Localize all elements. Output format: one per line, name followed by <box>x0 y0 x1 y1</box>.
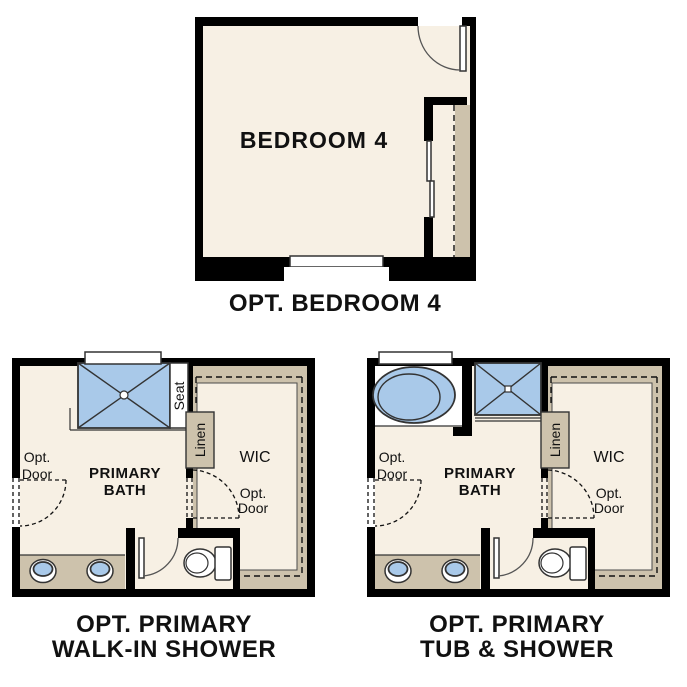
walkin-caption-line2: WALK-IN SHOWER <box>8 637 320 662</box>
walkin-caption: OPT. PRIMARY WALK-IN SHOWER <box>8 612 320 662</box>
sink-2-basin <box>91 562 110 576</box>
walkin-shower-plan: Seat Linen Opt. Door Opt. Door <box>8 348 320 602</box>
toilet-room-wall-top <box>178 528 240 538</box>
linen-label: Linen <box>547 423 563 457</box>
sink-1-basin <box>34 562 53 576</box>
bath-label-1: PRIMARY <box>444 465 516 482</box>
sink-2-basin <box>446 562 465 576</box>
toilet-door-leaf <box>494 538 499 578</box>
toilet-door-leaf <box>139 538 144 578</box>
closet-wall-top <box>424 97 467 105</box>
door-leaf <box>460 26 466 71</box>
vanity <box>20 555 125 589</box>
bath-label-2: BATH <box>459 482 502 499</box>
bedroom-caption: OPT. BEDROOM 4 <box>185 291 485 316</box>
bath-label-1: PRIMARY <box>89 465 161 482</box>
bath-wic-wall-upper <box>541 358 548 412</box>
wic-label: WIC <box>239 449 270 466</box>
window-glass <box>290 256 383 267</box>
linen-label: Linen <box>192 423 208 457</box>
bedroom-label: BEDROOM 4 <box>240 127 388 153</box>
tub-shower-plan: Linen Opt. Door Opt. Door <box>362 348 674 602</box>
tubshower-caption-line1: OPT. PRIMARY <box>360 612 674 637</box>
tubshower-caption-line2: TUB & SHOWER <box>360 637 674 662</box>
linen-cabinet: Linen <box>541 412 569 468</box>
door-opening <box>418 16 462 26</box>
bath-wic-wall-mid <box>186 468 193 478</box>
bath-label-2: BATH <box>104 482 147 499</box>
toilet-room-wall-right <box>233 528 240 589</box>
opt-door-label-1: Opt. <box>240 485 266 501</box>
bedroom-window <box>284 256 389 284</box>
shower-drain <box>120 391 128 399</box>
closet-shelf-band <box>455 105 470 257</box>
opt-door-label-1: Opt. <box>379 449 405 465</box>
closet-wall-stub-lower <box>424 217 433 257</box>
shower: Seat <box>70 363 188 430</box>
sink-1-basin <box>389 562 408 576</box>
vanity <box>375 555 480 589</box>
bath-window <box>379 352 452 364</box>
closet-slider-panel-1 <box>427 141 431 181</box>
opt-door-label-2: Door <box>377 466 408 482</box>
tubshower-caption: OPT. PRIMARY TUB & SHOWER <box>360 612 674 662</box>
opening <box>186 478 193 518</box>
closet-wall-stub-upper <box>424 105 433 141</box>
tub-shower-wall <box>462 358 472 436</box>
opt-door-label-2: Door <box>238 500 269 516</box>
window-sill <box>284 267 389 284</box>
tub <box>373 358 472 436</box>
opt-door-label-2: Door <box>594 500 625 516</box>
floorplan-sheet: BEDROOM 4 OPT. BEDROOM 4 <box>0 0 687 687</box>
bedroom4-plan: BEDROOM 4 <box>190 12 482 284</box>
toilet-tank <box>215 547 231 580</box>
linen-cabinet: Linen <box>186 412 214 468</box>
toilet-tank <box>570 547 586 580</box>
bath-wic-wall-mid <box>541 468 548 478</box>
toilet-room-wall-left <box>481 528 490 589</box>
tub-rim <box>373 367 455 423</box>
tub-shower-wall-stub <box>453 427 472 436</box>
walkin-caption-line1: OPT. PRIMARY <box>8 612 320 637</box>
seat-label: Seat <box>171 381 187 410</box>
toilet-room-wall-left <box>126 528 135 589</box>
opt-door-label-1: Opt. <box>24 449 50 465</box>
opening <box>541 478 548 518</box>
shower-drain <box>505 386 511 392</box>
closet-slider-panel-2 <box>430 181 434 217</box>
toilet-room-wall-top <box>533 528 595 538</box>
opt-door-label-2: Door <box>22 466 53 482</box>
opt-door-label-1: Opt. <box>596 485 622 501</box>
toilet-room-wall-right <box>588 528 595 589</box>
bath-window <box>85 352 161 364</box>
shower <box>475 363 541 421</box>
wic-label: WIC <box>593 449 624 466</box>
